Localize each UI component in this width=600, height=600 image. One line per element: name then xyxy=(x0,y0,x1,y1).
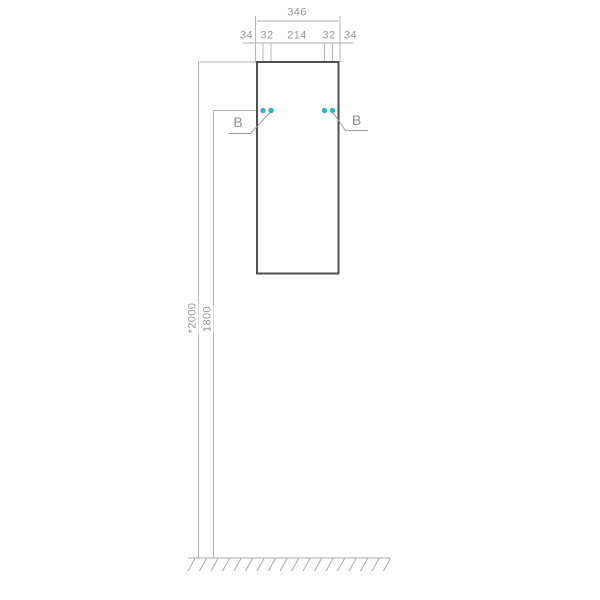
height-1800-label: 1800 xyxy=(203,305,214,333)
chain-dimension-label-34-left: 34 xyxy=(240,31,253,42)
floor-hatching xyxy=(188,559,391,572)
chain-dimension-label-32-left: 32 xyxy=(260,31,273,42)
installation-diagram: 346 34 32 214 32 34 *2000 1800 B B xyxy=(0,0,600,600)
mounting-hole-dot xyxy=(260,108,265,113)
diagram-linework xyxy=(0,0,600,600)
mounting-hole-dot xyxy=(268,108,273,113)
section-mark-b-left: B xyxy=(233,115,242,129)
cabinet-outline xyxy=(257,62,339,274)
section-mark-b-right: B xyxy=(352,113,361,127)
height-2000-label: *2000 xyxy=(188,302,199,335)
chain-dimension-label-34-right: 34 xyxy=(344,31,357,42)
chain-dimension-label-214: 214 xyxy=(287,31,307,42)
total-width-dimension-label: 346 xyxy=(287,8,307,19)
chain-dimension-label-32-right: 32 xyxy=(322,31,335,42)
mounting-hole-dot xyxy=(330,108,335,113)
mounting-hole-dot xyxy=(322,108,327,113)
